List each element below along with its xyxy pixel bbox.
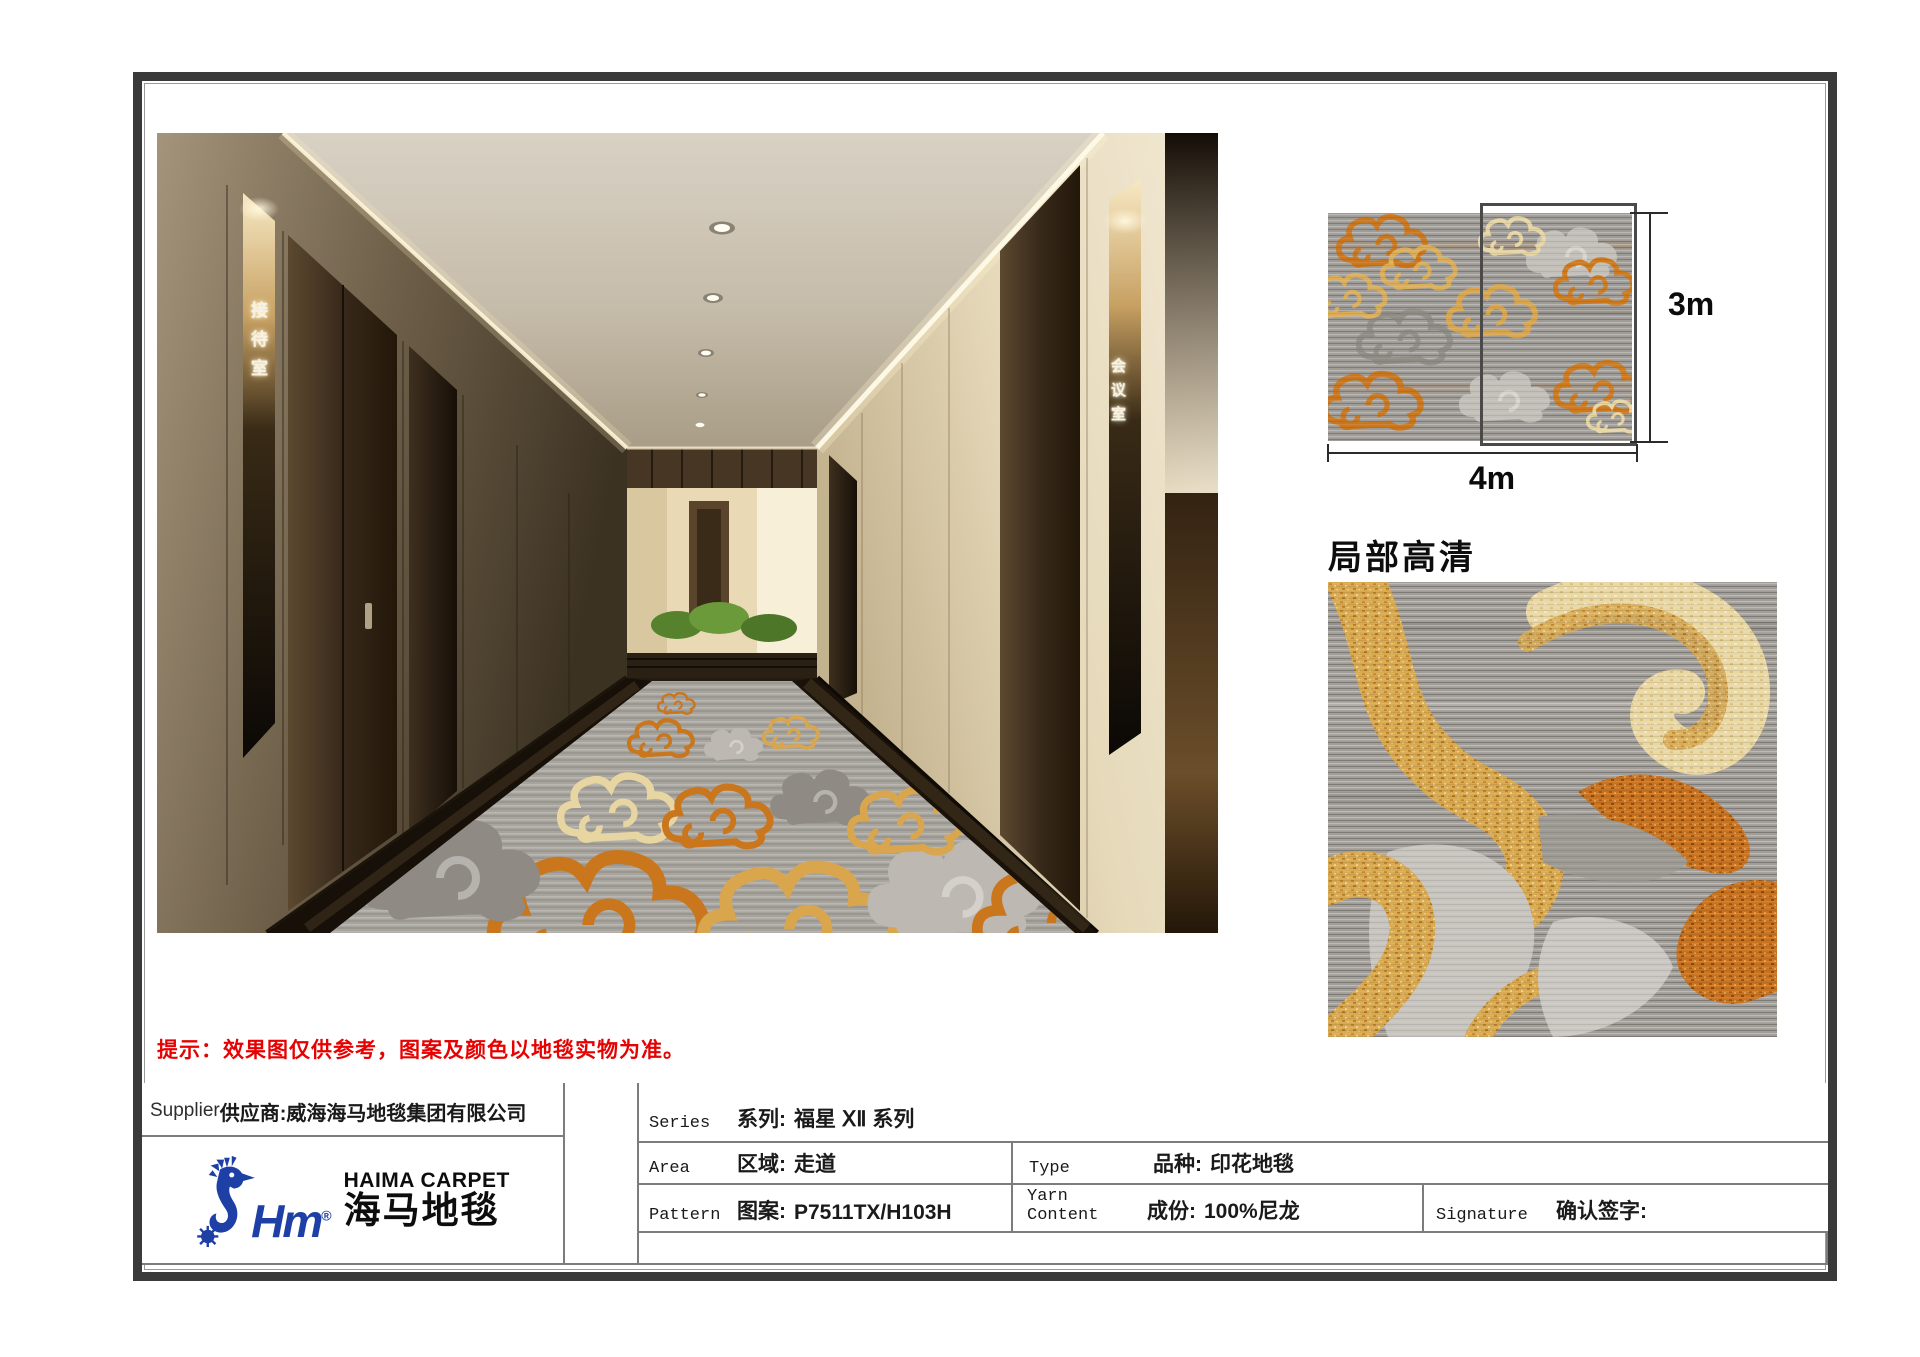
type-value: 印花地毯 xyxy=(1210,1148,1294,1178)
type-label-zh: 品种: xyxy=(1153,1148,1202,1178)
signature-label-en: Signature xyxy=(1436,1206,1556,1225)
disclaimer-text: 提示：效果图仅供参考，图案及颜色以地毯实物为准。 xyxy=(157,1034,685,1064)
type-label-en: Type xyxy=(1029,1159,1153,1178)
corridor-scene-graphic xyxy=(157,133,1218,933)
pattern-cell: Pattern 图案: P7511TX/H103H xyxy=(639,1185,1013,1233)
pattern-label-en: Pattern xyxy=(649,1206,737,1225)
table-spacer-column xyxy=(565,1083,639,1263)
seahorse-logo-icon xyxy=(195,1152,257,1248)
width-dimension-tick-left xyxy=(1327,444,1329,462)
pattern-value: P7511TX/H103H xyxy=(794,1201,952,1225)
yarn-content-value: 100%尼龙 xyxy=(1204,1195,1300,1225)
height-dimension-line xyxy=(1649,213,1651,443)
corridor-rendering: 接待室 会议室 xyxy=(157,133,1218,933)
carpet-detail-graphic xyxy=(1328,582,1777,1037)
area-label-zh: 区域: xyxy=(737,1148,786,1178)
signature-cell: Signature 确认签字: xyxy=(1424,1185,1828,1233)
haima-logo: Hm® HAIMA CARPET 海马地毯 xyxy=(195,1152,510,1248)
spec-sheet-page: 接待室 会议室 xyxy=(0,0,1920,1357)
yarn-content-label-en: Yarn Content xyxy=(1027,1187,1147,1225)
logo-monogram: Hm® xyxy=(251,1198,331,1244)
brand-name-en: HAIMA CARPET xyxy=(344,1170,510,1191)
supplier-label-en: Supplier xyxy=(150,1100,220,1122)
detail-title: 局部高清 xyxy=(1328,530,1476,579)
yarn-content-label-zh: 成份: xyxy=(1147,1195,1196,1225)
supplier-label-zh: 供应商: xyxy=(220,1097,287,1126)
width-dimension-line xyxy=(1328,452,1638,454)
logo-wordmark: HAIMA CARPET 海马地毯 xyxy=(344,1170,510,1229)
series-cell: Series 系列: 福星 ⅩⅡ 系列 xyxy=(639,1083,1828,1143)
area-value: 走道 xyxy=(794,1148,836,1178)
door-sign-meeting: 会议室 xyxy=(1107,358,1128,430)
width-dimension-label: 4m xyxy=(1452,460,1532,497)
width-dimension-tick-right xyxy=(1636,444,1638,462)
series-value: 福星 ⅩⅡ 系列 xyxy=(794,1103,914,1133)
logo-cell: Hm® HAIMA CARPET 海马地毯 xyxy=(142,1137,565,1263)
registered-mark: ® xyxy=(321,1208,331,1224)
logo-monogram-text: Hm xyxy=(251,1195,321,1247)
area-label-en: Area xyxy=(649,1159,737,1178)
series-label-en: Series xyxy=(649,1114,737,1133)
supplier-value: 威海海马地毯集团有限公司 xyxy=(286,1097,526,1126)
height-dimension-tick-bottom xyxy=(1630,441,1668,443)
supplier-cell: Supplier供应商:威海海马地毯集团有限公司 xyxy=(142,1083,565,1137)
height-dimension-tick-top xyxy=(1630,212,1668,214)
brand-name-zh: 海马地毯 xyxy=(344,1192,510,1230)
pattern-label-zh: 图案: xyxy=(737,1195,786,1225)
repeat-unit-outline xyxy=(1480,203,1637,446)
area-cell: Area 区域: 走道 xyxy=(639,1143,1013,1185)
type-cell: Type 品种: 印花地毯 xyxy=(1013,1143,1828,1185)
door-sign-reception: 接待室 xyxy=(245,301,270,388)
series-label-zh: 系列: xyxy=(737,1103,786,1133)
yarn-content-cell: Yarn Content 成份: 100%尼龙 xyxy=(1013,1185,1424,1233)
height-dimension-label: 3m xyxy=(1668,286,1714,323)
signature-label-zh: 确认签字: xyxy=(1556,1195,1647,1225)
carpet-detail-image xyxy=(1328,582,1777,1037)
